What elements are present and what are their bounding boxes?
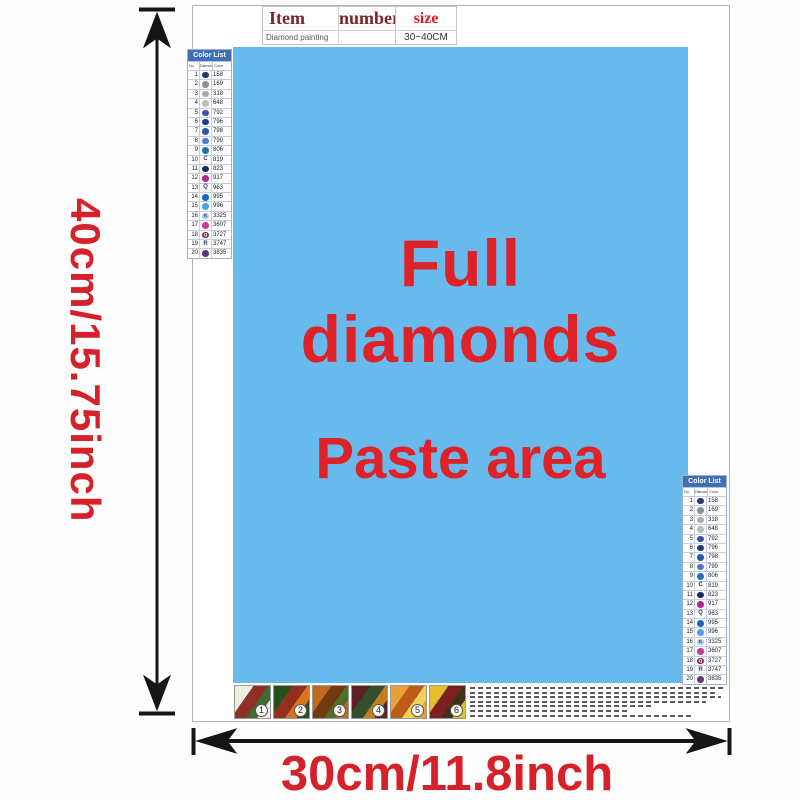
color-dot	[202, 81, 209, 88]
color-row-number: 11	[188, 165, 199, 173]
color-row: 13Q963	[188, 183, 231, 192]
color-symbol-cell: Q	[199, 184, 212, 192]
color-symbol-cell	[694, 675, 707, 683]
color-dot	[697, 564, 704, 571]
color-row-number: 13	[683, 610, 694, 618]
color-code: 796	[212, 118, 231, 126]
color-list-column-headers: No. Diamond Color	[188, 61, 231, 70]
color-row-number: 20	[188, 249, 199, 257]
color-row: 19R3747	[188, 239, 231, 248]
step-thumbnail-image: 2	[273, 685, 310, 719]
color-code: 158	[212, 71, 231, 79]
color-dot	[697, 554, 704, 561]
color-row: 6796	[188, 117, 231, 126]
paste-area: Full diamonds Paste area	[233, 47, 688, 683]
color-row-number: 1	[188, 71, 199, 79]
color-row: 19R3747	[683, 665, 726, 674]
color-row-number: 14	[683, 619, 694, 627]
color-row-number: 12	[683, 600, 694, 608]
color-dot	[202, 250, 209, 257]
color-dot	[697, 648, 704, 655]
fine-print-line	[470, 705, 653, 707]
color-row-number: 7	[188, 127, 199, 135]
color-code: 963	[212, 184, 231, 192]
color-dot	[697, 536, 704, 543]
color-dot	[697, 507, 704, 514]
item-header-cell: Item	[263, 7, 338, 30]
color-row: 18Q3727	[683, 656, 726, 665]
color-code: 806	[707, 572, 726, 580]
vertical-dimension-arrow	[139, 10, 175, 714]
color-row: 9806	[683, 571, 726, 580]
color-dot	[697, 526, 704, 533]
color-row-number: 9	[188, 146, 199, 154]
color-row: 10C819	[683, 581, 726, 590]
color-row-number: 19	[188, 240, 199, 248]
step-thumbnail-image: 6	[429, 685, 466, 719]
color-row-number: 6	[188, 118, 199, 126]
color-code: 792	[212, 109, 231, 117]
number-value-cell	[338, 30, 395, 44]
color-symbol-cell: Q	[199, 231, 212, 239]
color-code: 3747	[707, 666, 726, 674]
color-code: 158	[707, 497, 726, 505]
color-row: 11823	[683, 590, 726, 599]
color-symbol-cell: R	[694, 666, 707, 674]
step-number-badge: 2	[294, 704, 307, 717]
color-column-header: Color	[212, 62, 231, 70]
step-thumbnail-image: 1	[234, 685, 271, 719]
color-row-number: 16	[683, 638, 694, 646]
step-number-badge: 3	[333, 704, 346, 717]
color-dot	[202, 128, 209, 135]
color-row-number: 8	[683, 563, 694, 571]
color-row: 173607	[188, 220, 231, 229]
color-row: 7798	[683, 552, 726, 561]
color-code: 3835	[212, 249, 231, 257]
color-row: 16K3325	[683, 637, 726, 646]
color-code: 917	[212, 174, 231, 182]
color-dot	[697, 620, 704, 627]
no-column-header: No.	[683, 488, 694, 496]
color-dot	[202, 72, 209, 79]
color-row-number: 12	[188, 174, 199, 182]
color-symbol-cell	[694, 619, 707, 627]
size-value-cell: 30~40CM	[395, 30, 456, 44]
color-code: 3747	[212, 240, 231, 248]
width-dimension-label: 30cm/11.8inch	[250, 746, 644, 800]
color-symbol-cell	[199, 221, 212, 229]
color-symbol-cell	[694, 535, 707, 543]
color-code: 798	[212, 127, 231, 135]
color-row-number: 18	[683, 657, 694, 665]
number-header-cell: number	[338, 7, 395, 30]
color-row: 2169	[188, 79, 231, 88]
color-symbol-cell: R	[199, 240, 212, 248]
color-row-number: 10	[683, 582, 694, 590]
step-number-badge: 4	[372, 704, 385, 717]
color-code: 318	[707, 516, 726, 524]
color-symbol-cell	[199, 127, 212, 135]
color-row: 203835	[188, 248, 231, 257]
color-row: 8799	[188, 136, 231, 145]
color-list-column-headers: No. Diamond Color	[683, 487, 726, 496]
fine-print-line	[470, 687, 724, 689]
color-symbol-cell	[694, 497, 707, 505]
color-row: 13Q963	[683, 609, 726, 618]
color-code: 3607	[707, 647, 726, 655]
color-symbol: R	[698, 666, 702, 675]
color-dot	[202, 110, 209, 117]
step-number-badge: 5	[411, 704, 424, 717]
color-code: 3325	[707, 638, 726, 646]
color-symbol-cell	[199, 118, 212, 126]
color-code: 169	[707, 506, 726, 514]
color-row-number: 15	[188, 202, 199, 210]
color-dot	[202, 147, 209, 154]
color-code: 3607	[212, 221, 231, 229]
fine-print-line	[470, 692, 716, 694]
color-row-number: 3	[683, 516, 694, 524]
color-code: 823	[707, 591, 726, 599]
color-code: 3727	[212, 231, 231, 239]
color-row: 14995	[188, 192, 231, 201]
color-symbol: Q	[203, 183, 208, 192]
color-row: 8799	[683, 562, 726, 571]
step-thumbnail-image: 4	[351, 685, 388, 719]
step-number-badge: 1	[255, 704, 268, 717]
color-symbol-cell	[694, 516, 707, 524]
instructions-fine-print	[470, 687, 724, 719]
no-column-header: No.	[188, 62, 199, 70]
color-symbol-cell	[199, 71, 212, 79]
color-dot	[697, 517, 704, 524]
color-symbol-cell	[199, 80, 212, 88]
color-dot	[202, 203, 209, 210]
step-thumbnails: 123456	[234, 685, 466, 719]
color-symbol-cell	[199, 174, 212, 182]
color-symbol-cell	[694, 506, 707, 514]
color-dot	[202, 194, 209, 201]
color-row: 10C819	[188, 155, 231, 164]
color-row-number: 19	[683, 666, 694, 674]
color-symbol-cell	[694, 600, 707, 608]
step-number-badge: 6	[450, 704, 463, 717]
color-list-rows: 11582169331846485792679677988799980610C8…	[188, 70, 231, 258]
color-code: 648	[707, 525, 726, 533]
step-thumbnail-image: 3	[312, 685, 349, 719]
color-symbol-cell: K	[694, 638, 707, 646]
color-dot: K	[697, 639, 704, 646]
color-row: 5792	[683, 534, 726, 543]
color-row: 3318	[188, 89, 231, 98]
color-row-number: 17	[188, 221, 199, 229]
color-row: 16K3325	[188, 211, 231, 220]
color-row-number: 8	[188, 137, 199, 145]
fine-print-line	[470, 696, 721, 698]
color-row-number: 3	[188, 90, 199, 98]
color-row-number: 16	[188, 212, 199, 220]
color-code: 819	[212, 156, 231, 164]
color-code: 819	[707, 582, 726, 590]
color-row-number: 4	[188, 99, 199, 107]
color-symbol-cell	[694, 563, 707, 571]
color-row: 7798	[188, 126, 231, 135]
color-row-number: 5	[683, 535, 694, 543]
item-name-cell: Diamond painting	[263, 30, 338, 44]
paste-area-subtitle: Paste area	[233, 425, 688, 492]
color-dot	[202, 100, 209, 107]
product-dimension-image: 40cm/15.75inch 30cm/11.8inch Item number…	[0, 0, 800, 800]
color-code: 3325	[212, 212, 231, 220]
color-row: 12917	[188, 173, 231, 182]
color-code: 318	[212, 90, 231, 98]
color-row: 5792	[188, 108, 231, 117]
color-row-number: 6	[683, 544, 694, 552]
color-symbol-cell	[199, 146, 212, 154]
color-row: 173607	[683, 646, 726, 655]
color-code: 963	[707, 610, 726, 618]
color-row-number: 2	[683, 506, 694, 514]
color-row: 1158	[188, 70, 231, 79]
color-row: 2169	[683, 505, 726, 514]
color-row-number: 10	[188, 156, 199, 164]
color-code: 648	[212, 99, 231, 107]
color-symbol-cell	[694, 647, 707, 655]
color-symbol-cell: Q	[694, 610, 707, 618]
color-dot	[697, 676, 704, 683]
color-symbol-cell	[694, 553, 707, 561]
color-symbol-cell	[694, 572, 707, 580]
color-code: 169	[212, 80, 231, 88]
color-symbol-cell: Q	[694, 657, 707, 665]
color-code: 996	[212, 202, 231, 210]
color-list-right: Color List No. Diamond Color 11582169331…	[682, 475, 727, 685]
color-symbol-cell: C	[199, 156, 212, 164]
color-symbol-cell	[199, 202, 212, 210]
color-dot	[202, 175, 209, 182]
color-row: 18Q3727	[188, 230, 231, 239]
color-row: 4648	[188, 98, 231, 107]
color-dot: K	[202, 213, 209, 220]
color-row-number: 5	[188, 109, 199, 117]
color-row: 12917	[683, 599, 726, 608]
color-code: 798	[707, 553, 726, 561]
color-symbol-cell	[694, 525, 707, 533]
color-dot	[202, 166, 209, 173]
diamond-column-header: Diamond	[199, 62, 212, 70]
color-row-number: 1	[683, 497, 694, 505]
fine-print-line	[470, 715, 694, 717]
item-table-header-row: Item number size	[263, 7, 456, 30]
color-symbol-cell: K	[199, 212, 212, 220]
color-row: 9806	[188, 145, 231, 154]
color-code: 799	[212, 137, 231, 145]
color-row: 3318	[683, 515, 726, 524]
color-row: 15996	[188, 201, 231, 210]
color-row: 4648	[683, 524, 726, 533]
diamond-column-header: Diamond	[694, 488, 707, 496]
color-row: 15996	[683, 627, 726, 636]
color-symbol: C	[698, 581, 702, 590]
color-list-title: Color List	[683, 476, 726, 487]
color-row-number: 14	[188, 193, 199, 201]
color-dot	[697, 498, 704, 505]
color-symbol-cell	[694, 591, 707, 599]
color-row-number: 2	[188, 80, 199, 88]
color-symbol-cell	[199, 109, 212, 117]
color-row-number: 4	[683, 525, 694, 533]
color-list-title: Color List	[188, 50, 231, 61]
color-row-number: 20	[683, 675, 694, 683]
color-dot	[202, 222, 209, 229]
item-table-value-row: Diamond painting 30~40CM	[263, 30, 456, 44]
color-symbol-cell	[694, 628, 707, 636]
color-dot	[202, 119, 209, 126]
color-code: 796	[707, 544, 726, 552]
color-symbol-cell	[199, 249, 212, 257]
color-dot: Q	[697, 658, 704, 665]
color-dot	[697, 601, 704, 608]
color-symbol-cell	[199, 193, 212, 201]
color-code: 799	[707, 563, 726, 571]
color-row: 11823	[188, 164, 231, 173]
color-code: 995	[707, 619, 726, 627]
height-dimension-label: 40cm/15.75inch	[62, 198, 108, 523]
color-row-number: 9	[683, 572, 694, 580]
color-row-number: 13	[188, 184, 199, 192]
color-dot	[697, 629, 704, 636]
color-row-number: 18	[188, 231, 199, 239]
color-symbol: C	[203, 155, 207, 164]
color-code: 792	[707, 535, 726, 543]
color-symbol-cell	[199, 165, 212, 173]
color-symbol-cell	[199, 99, 212, 107]
color-code: 3835	[707, 675, 726, 683]
color-dot: Q	[202, 232, 209, 239]
color-code: 996	[707, 628, 726, 636]
paste-area-title: Full diamonds	[233, 225, 688, 377]
color-row-number: 17	[683, 647, 694, 655]
color-dot	[697, 573, 704, 580]
color-dot	[202, 91, 209, 98]
color-code: 806	[212, 146, 231, 154]
color-column-header: Color	[707, 488, 726, 496]
color-list-left: Color List No. Diamond Color 11582169331…	[187, 49, 232, 259]
color-row: 14995	[683, 618, 726, 627]
color-row: 203835	[683, 674, 726, 683]
fine-print-line	[470, 710, 627, 712]
canvas-sheet: Item number size Diamond painting 30~40C…	[192, 5, 730, 722]
color-symbol-cell	[199, 90, 212, 98]
color-row-number: 7	[683, 553, 694, 561]
color-symbol-cell: C	[694, 582, 707, 590]
color-symbol-cell	[199, 137, 212, 145]
color-row: 1158	[683, 496, 726, 505]
color-dot	[697, 545, 704, 552]
color-symbol: R	[203, 240, 207, 249]
color-code: 995	[212, 193, 231, 201]
color-dot	[202, 138, 209, 145]
fine-print-line	[470, 701, 706, 703]
color-row-number: 11	[683, 591, 694, 599]
color-dot	[697, 592, 704, 599]
color-code: 3727	[707, 657, 726, 665]
color-code: 823	[212, 165, 231, 173]
item-info-table: Item number size Diamond painting 30~40C…	[262, 6, 457, 45]
color-row-number: 15	[683, 628, 694, 636]
color-list-rows: 11582169331846485792679677988799980610C8…	[683, 496, 726, 684]
color-symbol: Q	[698, 609, 703, 618]
step-thumbnail-image: 5	[390, 685, 427, 719]
color-row: 6796	[683, 543, 726, 552]
size-header-cell: size	[395, 7, 456, 30]
color-code: 917	[707, 600, 726, 608]
color-symbol-cell	[694, 544, 707, 552]
